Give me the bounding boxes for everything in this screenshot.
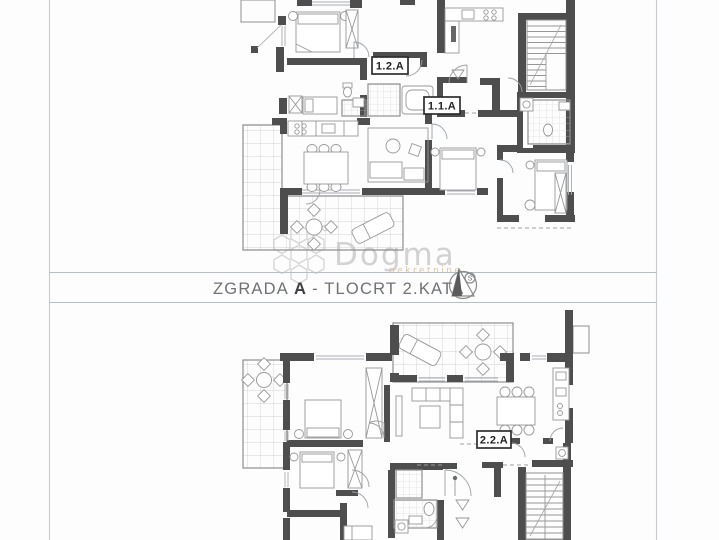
bedroom-B — [525, 160, 567, 213]
shower — [396, 470, 422, 498]
page-title: ZGRADAA- TLOCRT 2.KATA — [213, 280, 464, 298]
round-table — [386, 139, 400, 153]
tv-cabinet — [396, 396, 402, 436]
bed — [300, 452, 334, 488]
outdoor-table — [257, 373, 272, 388]
bed — [440, 148, 476, 190]
bathroom-center — [394, 470, 437, 533]
living-room — [368, 128, 428, 182]
sofa — [370, 162, 402, 178]
scanned-floor-plan-page: Dogma nekretnine — [0, 0, 719, 540]
bedroom-A — [431, 148, 485, 190]
dining-table — [497, 387, 535, 435]
unit-label-1-2-A: 1.2.A — [376, 61, 404, 73]
terrace-top-center — [393, 323, 513, 382]
bedroom-lower-3-partial — [344, 526, 372, 540]
bedroom-lower-2 — [290, 450, 362, 488]
bedroom-upper-left — [289, 10, 359, 52]
outdoor-table — [475, 344, 491, 360]
toilet — [544, 124, 553, 136]
floor-plan-drawing: Dogma nekretnine — [0, 0, 719, 540]
staircase-lower — [526, 473, 563, 540]
washing-machine — [395, 520, 408, 533]
wc-right — [556, 447, 568, 459]
unit-label-1-1-A: 1.1.A — [428, 101, 456, 113]
bathroom-right — [520, 98, 570, 144]
unit-label-2-2-A: 2.2.A — [480, 435, 508, 447]
kitchen-counter — [553, 368, 569, 420]
watermark-tagline: nekretnine — [389, 266, 462, 276]
sink — [353, 98, 364, 107]
bedroom-lower-1 — [295, 368, 383, 439]
toilet — [424, 503, 434, 516]
kitchen-dining-living — [288, 121, 428, 192]
sink — [559, 102, 570, 110]
floor-lamp — [453, 476, 457, 480]
dining-table — [304, 145, 348, 192]
floor-plan-lower — [242, 310, 589, 540]
bed — [344, 526, 372, 540]
title-band: ZGRADAA- TLOCRT 2.KATA S — [49, 269, 657, 303]
kitchen-1-1-A — [445, 8, 503, 53]
small-bedroom-and-baths — [289, 83, 433, 116]
balcony-top-right — [573, 326, 589, 353]
floor-plan-upper — [241, 0, 575, 250]
terrace-left — [242, 358, 287, 468]
washing-machine — [556, 447, 568, 459]
bed — [303, 97, 337, 114]
bed — [305, 400, 341, 438]
bed — [296, 12, 340, 52]
sink — [409, 516, 422, 524]
outdoor-table — [306, 219, 322, 235]
staircase-upper — [527, 20, 566, 90]
coffee-table — [420, 406, 440, 428]
washing-machine — [520, 98, 533, 111]
compass-letter: S — [468, 276, 473, 283]
balcony-top-left — [241, 0, 275, 22]
unit-labels-lower: 2.2.A — [477, 431, 511, 448]
